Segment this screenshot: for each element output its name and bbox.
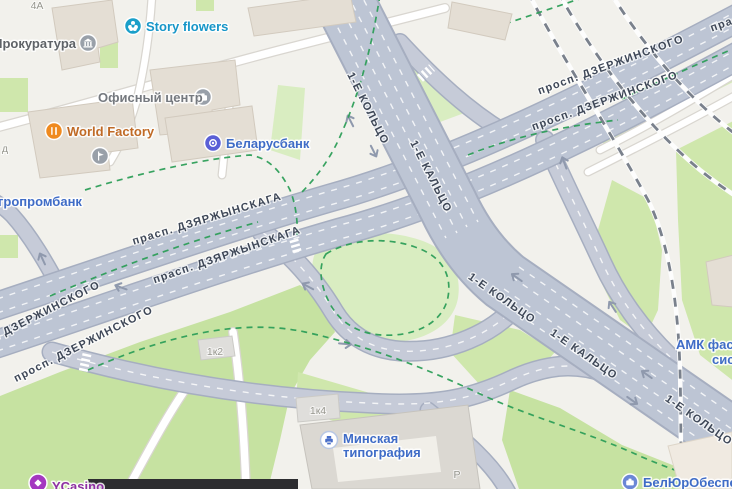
dark-building-strip	[88, 479, 298, 489]
government-icon	[80, 35, 97, 52]
briefcase-icon	[622, 474, 638, 489]
building-label-d: д	[2, 143, 8, 155]
poi-label: Story flowers	[146, 19, 228, 34]
poi-label-line1: АМК фаса	[676, 337, 732, 352]
flag-icon	[92, 148, 109, 165]
poi-story-flowers[interactable]: Story flowers	[125, 18, 229, 35]
parking-label: Р	[453, 469, 460, 481]
poi-label: Прокуратура	[0, 36, 77, 51]
map-canvas[interactable]: 4А д 1к2 1к4 Р 1-Е КОЛЬЦО 1-Е КАЛЬЦО 1-Е…	[0, 0, 732, 489]
restaurant-icon	[46, 123, 63, 140]
poi-label: БелЮрОбеспеч	[643, 475, 732, 489]
poi-label: YCasino	[52, 479, 104, 489]
poi-label: гропромбанк	[0, 194, 82, 209]
poi-label-line1: Минская	[343, 431, 398, 446]
flower-icon	[125, 18, 142, 35]
printer-icon	[321, 432, 338, 449]
building-label-4a: 4А	[31, 0, 44, 12]
bank-icon	[205, 135, 222, 152]
poi-office-center[interactable]: Офисный центр	[98, 89, 212, 106]
poi-label: Офисный центр	[98, 90, 203, 105]
poi-label: World Factory	[67, 124, 155, 139]
building-label-1k4: 1к4	[310, 405, 326, 417]
poi-label-line2: сис	[712, 352, 732, 367]
casino-icon	[29, 474, 47, 489]
poi-agroprombank[interactable]: гропромбанк	[0, 194, 82, 209]
building-label-1k2: 1к2	[207, 346, 223, 358]
poi-flag-marker[interactable]	[92, 148, 109, 165]
poi-label-line2: типография	[343, 445, 421, 460]
poi-prokuratura[interactable]: Прокуратура	[0, 35, 97, 52]
poi-label: Беларусбанк	[226, 136, 310, 151]
